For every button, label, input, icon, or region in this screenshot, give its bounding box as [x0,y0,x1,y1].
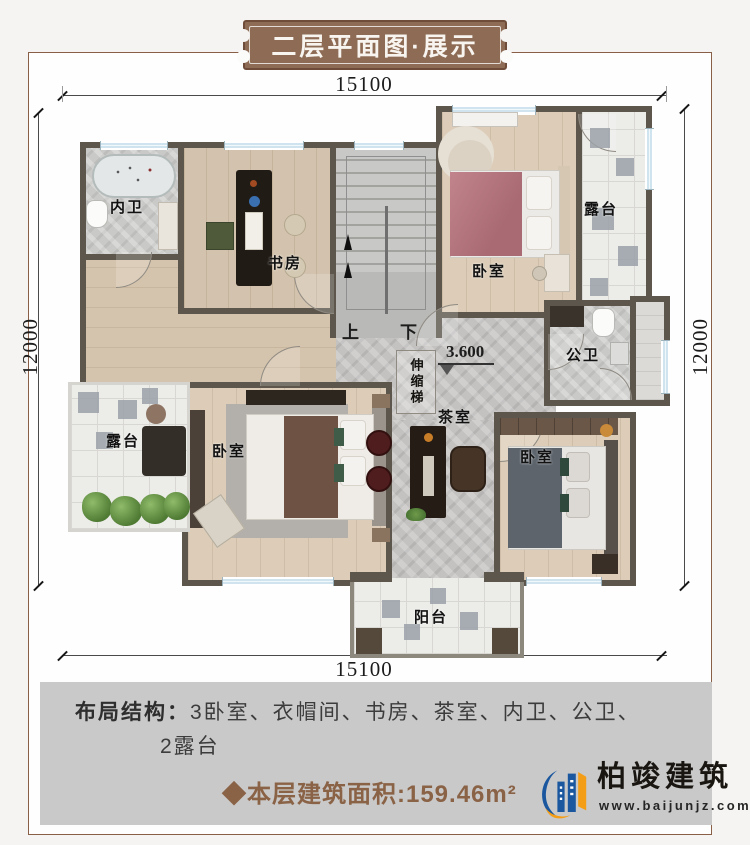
layout-structure-line2: 2露台 [160,730,220,760]
title-banner: 二层平面图·展示 [243,20,507,70]
window [354,141,404,150]
floor-area-text: ◆本层建筑面积:159.46m² [222,774,517,809]
paver [590,128,610,148]
label-ensuite-bath: 内卫 [110,196,144,217]
pillow [526,216,552,250]
cushion-green [334,464,344,482]
label-terrace-right: 露台 [584,198,618,219]
paver [430,588,446,604]
layout-structure-line: 布局结构：3卧室、衣帽间、书房、茶室、内卫、公卫、 [75,696,641,726]
dim-right-value: 12000 [688,318,713,376]
stool [532,266,547,281]
bath-vanity [158,202,178,250]
page-title: 二层平面图·展示 [271,27,478,63]
label-tea-room: 茶室 [438,406,472,427]
paver [618,246,638,266]
dim-left-value: 12000 [18,318,43,376]
plant [164,492,190,520]
plant [110,496,142,526]
paver [590,278,608,296]
window [526,577,602,586]
pillow [526,176,552,210]
bathtub [92,154,176,198]
window [645,128,654,190]
window [661,340,670,394]
desk-pad [245,212,263,250]
study-chair [284,214,306,236]
bed-headboard [604,440,618,556]
dim-top-value: 15100 [324,72,404,97]
nightstand [592,554,618,574]
paver [118,400,137,419]
banner-notch [237,29,250,42]
corner-planter [492,628,518,654]
pouf [146,404,166,424]
wall-segment [350,572,392,582]
label-terrace-left: 露台 [106,430,140,451]
stair-direction-arrow [344,262,352,278]
tea-stool [366,430,392,456]
paver [460,612,478,630]
company-website: www.baijunjz.com [599,798,750,813]
tea-set [424,433,433,442]
dim-bottom-value: 15100 [324,657,404,682]
label-study: 书房 [268,252,302,273]
cushion-green [560,458,569,476]
bath-vanity [550,306,584,327]
paver [616,158,634,176]
paver [382,600,400,618]
paver [78,392,99,413]
cabinet [452,112,518,127]
label-stairs-up: 上 [342,318,359,343]
nightstand [372,394,390,408]
cushion-green [560,494,569,512]
window [224,141,304,150]
layout-structure-items: 3卧室、衣帽间、书房、茶室、内卫、公卫、 [190,701,641,724]
paver [142,388,158,404]
company-logo-icon [535,764,591,820]
telescopic-ladder-label: 伸缩梯 [407,358,426,406]
label-bedroom-left: 卧室 [212,440,246,461]
outdoor-sofa [142,426,186,476]
pillow [566,488,590,518]
telescopic-ladder-box: 伸缩梯 [396,350,436,414]
plant [82,492,112,522]
desk-accessory [250,180,257,187]
toilet [86,200,108,228]
label-bedroom-top: 卧室 [472,260,506,281]
study-rug [206,222,234,250]
layout-structure-label: 布局结构： [75,701,190,724]
window [100,141,168,150]
elevation-label: 3.600 [446,342,484,362]
plant [406,508,426,521]
bed-blanket-brown [284,416,338,518]
stair-direction-arrow [344,234,352,250]
tea-cabinet-panel [423,456,434,496]
elevation-triangle [440,365,454,375]
desk-accessory [249,196,260,207]
wall-segment [484,572,524,582]
label-balcony: 阳台 [414,606,448,627]
label-public-bath: 公卫 [566,344,600,365]
corner-planter [356,628,382,654]
banner-notch [237,50,250,63]
banner-notch [500,50,513,63]
company-name: 柏竣建筑 [597,762,733,792]
cushion-green [334,428,344,446]
washer [610,342,629,365]
dressing-table [544,254,570,292]
wall-shelf [246,390,346,405]
armchair [450,446,486,492]
tea-stool [366,466,392,492]
banner-notch [500,29,513,42]
nightstand [372,528,390,542]
bed-blanket-pink [450,172,522,256]
company-logo: 柏竣建筑 www.baijunjz.com [535,762,745,822]
lamp [600,424,613,437]
label-bedroom-right: 卧室 [520,446,554,467]
label-stairs-down: 下 [400,318,417,343]
window [222,577,334,586]
pillow [566,452,590,482]
stair-center-rail [385,206,388,314]
info-box: 布局结构：3卧室、衣帽间、书房、茶室、内卫、公卫、 2露台 ◆本层建筑面积:15… [40,682,712,825]
toilet [592,308,615,337]
